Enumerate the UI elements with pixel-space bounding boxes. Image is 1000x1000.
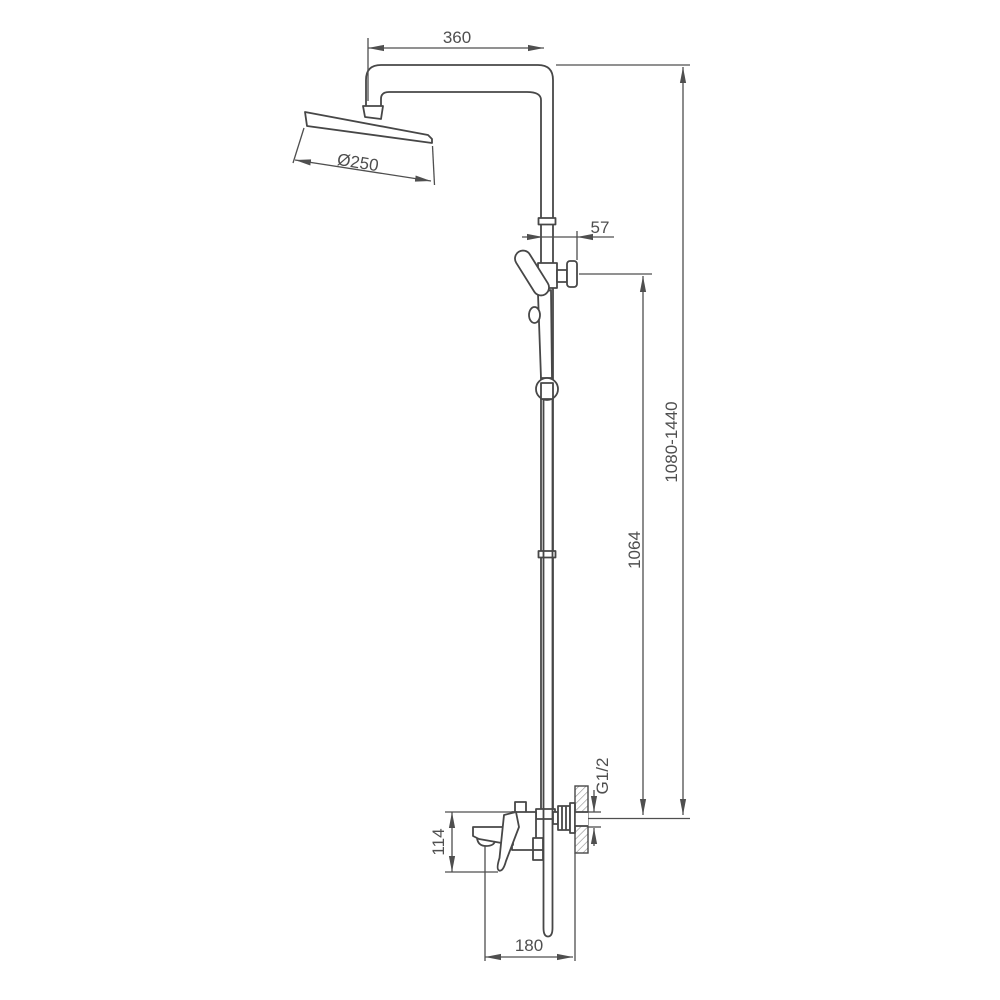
hand-shower-handle [538,290,552,378]
hand-shower-clip [529,307,540,323]
dim-head-diameter-label: Ø250 [336,150,380,175]
dim-wall-thread: G1/2 [588,758,612,846]
dim-spout-drop-label: 114 [429,828,448,855]
dim-arm-reach-label: 360 [443,28,471,47]
connection-nut [558,806,570,830]
dim-wall-thread-label: G1/2 [593,758,612,795]
diverter-step [533,838,543,860]
wall-section [575,786,588,853]
dim-riser-height-label: 1064 [625,531,644,569]
wall-connection [553,803,575,833]
wall-flange [570,803,575,833]
shower-hose [544,399,553,937]
hose-end [544,928,553,937]
riser-union-upper [539,218,556,225]
bracket-knob-stem [557,270,567,282]
bracket-knob [567,261,577,287]
shower-technical-drawing: 360 Ø250 57 1080-1440 1064 G1/2 [0,0,1000,1000]
shower-technical-drawing-page: 360 Ø250 57 1080-1440 1064 G1/2 [0,0,1000,1000]
dim-overall-height-label: 1080-1440 [662,401,681,482]
dim-riser-height: 1064 [579,274,652,815]
dim-bracket-offset-label: 57 [591,218,610,237]
dim-wall-offset-label: 180 [515,936,543,955]
hose-nut [541,383,553,399]
shower-arm [363,65,553,119]
wall-pipe-opening [576,812,588,826]
dim-bracket-offset: 57 [522,218,614,260]
head-connector [363,106,383,119]
dim-overall-height: 1080-1440 [556,65,690,815]
